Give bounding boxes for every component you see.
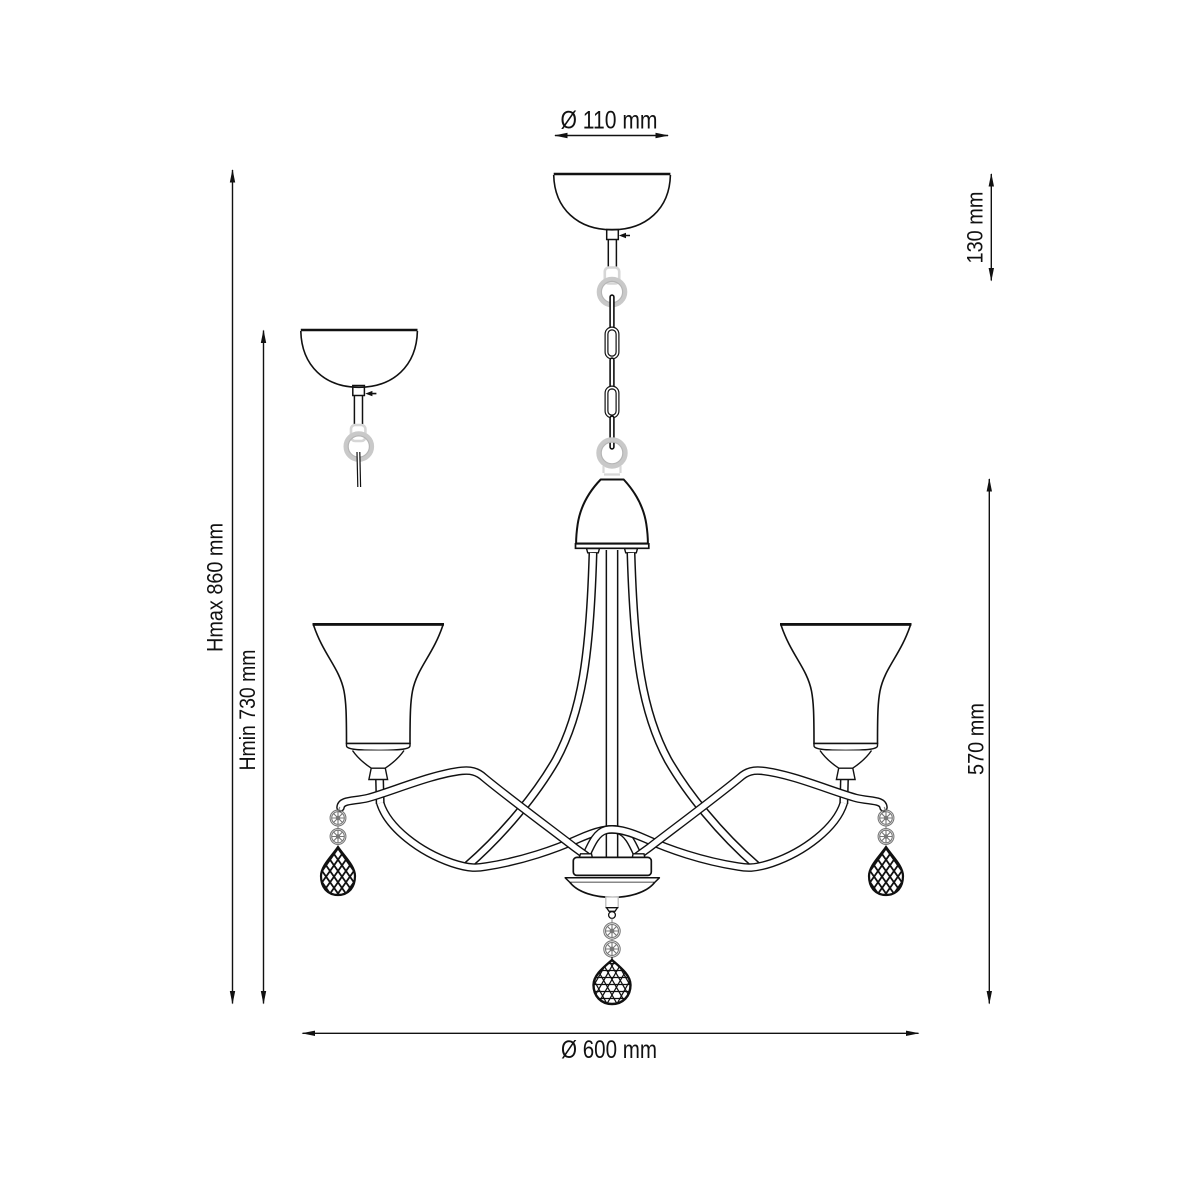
svg-text:Ø 110 mm: Ø 110 mm	[561, 107, 658, 135]
svg-text:Hmin 730 mm: Hmin 730 mm	[235, 650, 260, 771]
svg-text:Ø 600 mm: Ø 600 mm	[561, 1036, 657, 1064]
svg-text:570 mm: 570 mm	[964, 703, 989, 775]
svg-text:Hmax 860 mm: Hmax 860 mm	[203, 523, 228, 652]
svg-text:130 mm: 130 mm	[963, 192, 988, 264]
